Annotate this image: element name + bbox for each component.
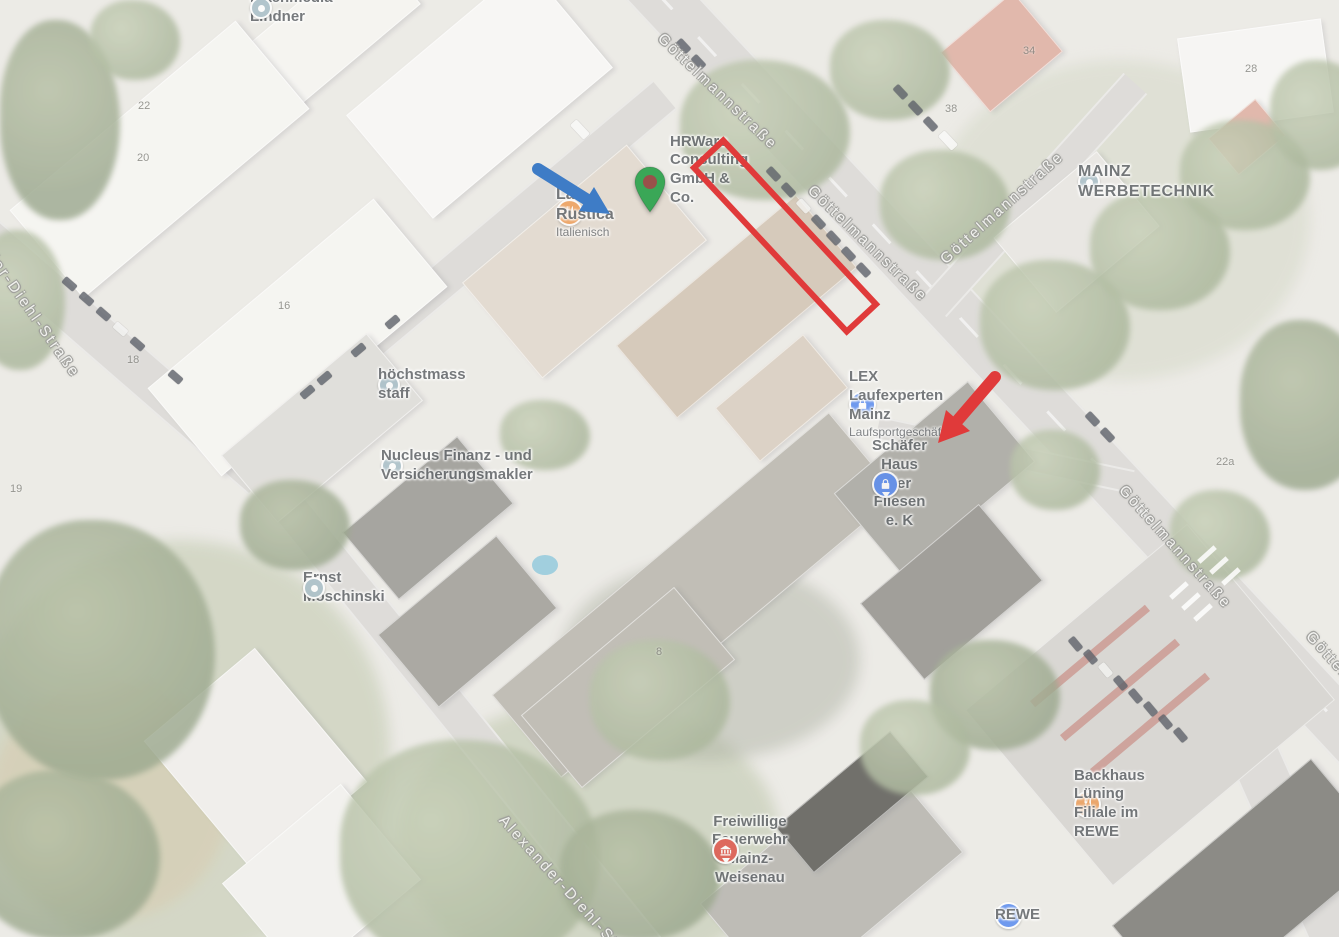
tree-canopy (860, 700, 970, 795)
poi-label: REWE (995, 906, 1040, 925)
poi-label: Backhaus Lüning Filiale im REWE (1074, 767, 1145, 842)
poi-label: MAINZ WERBETECHNIK (1078, 162, 1215, 202)
tree-canopy (880, 150, 1010, 260)
parked-car (922, 116, 938, 132)
tree-canopy (240, 480, 350, 570)
poi-label: LEX Laufexperten Mainz Laufsportgeschäft (849, 368, 944, 439)
poi-label: La Rustica Italienisch (556, 185, 614, 240)
poi-label: höchstmass staff (378, 366, 466, 404)
civic-building-icon (712, 837, 739, 864)
poi-label: Nucleus Finanz - und Versicherungsmakler (381, 447, 533, 485)
map-pin-green[interactable] (632, 166, 668, 214)
parked-car (855, 262, 871, 278)
tree-canopy (1240, 320, 1339, 490)
tree-canopy (830, 20, 950, 120)
place-dot-icon (303, 577, 325, 599)
swimming-pool (532, 555, 558, 575)
tree-canopy (1010, 430, 1100, 510)
tree-canopy (590, 640, 730, 760)
tree-canopy (560, 810, 720, 937)
tree-canopy (90, 0, 180, 80)
map-canvas[interactable]: Göttelmannstraße Göttelmannstraße Göttel… (0, 0, 1339, 937)
shop-icon (872, 471, 899, 498)
